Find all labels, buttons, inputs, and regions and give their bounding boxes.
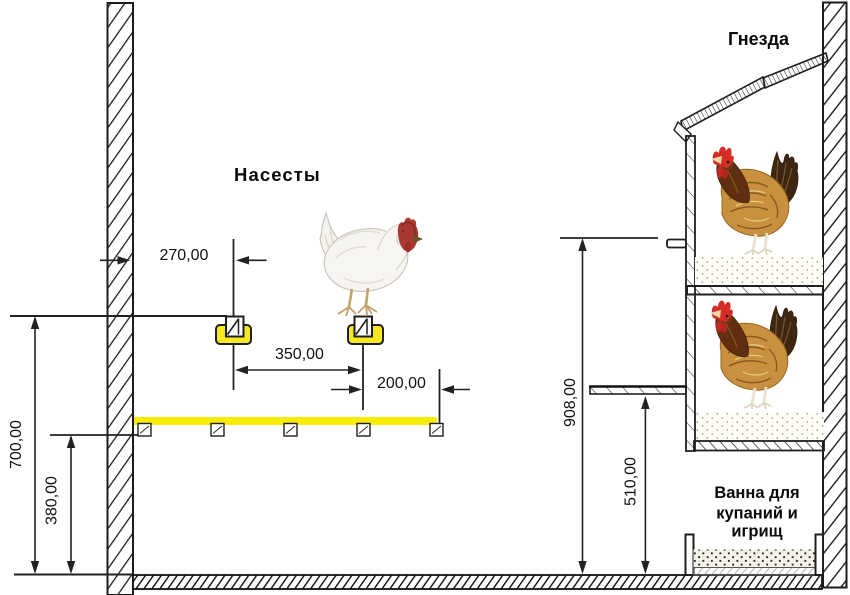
svg-text:200,00: 200,00 <box>377 375 426 392</box>
svg-text:270,00: 270,00 <box>160 247 209 264</box>
svg-text:380,00: 380,00 <box>44 476 61 525</box>
svg-text:Ванна для: Ванна для <box>714 484 799 502</box>
svg-text:Насесты: Насесты <box>234 164 321 185</box>
svg-text:игрищ: игрищ <box>731 523 782 541</box>
svg-text:908,00: 908,00 <box>562 378 579 427</box>
svg-text:510,00: 510,00 <box>623 457 640 506</box>
svg-text:купаний и: купаний и <box>716 505 798 523</box>
svg-text:350,00: 350,00 <box>275 346 324 363</box>
svg-text:Гнезда: Гнезда <box>728 29 790 49</box>
svg-text:700,00: 700,00 <box>8 420 25 469</box>
